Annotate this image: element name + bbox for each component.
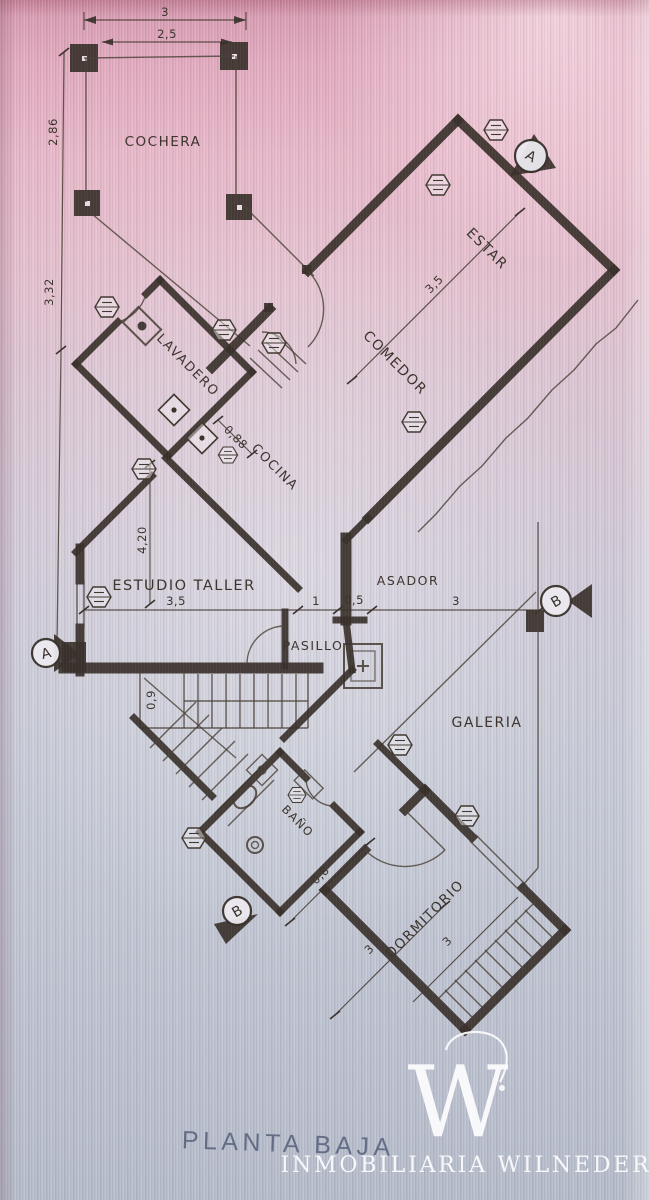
dim-cochera-width-inner: 2,5: [157, 27, 177, 41]
section-marker-b-bottom: B: [214, 897, 258, 944]
room-label-dormitorio: DORMITORIO: [383, 877, 468, 962]
closet-hatch: [445, 910, 555, 1020]
floor-plan-photo: 3 2,5 COCHERA 2,86 3,32: [0, 0, 649, 1200]
room-label-comedor: COMEDOR: [360, 328, 431, 399]
sink-icon: [247, 837, 263, 853]
brand-logo-letter: W: [408, 1046, 509, 1160]
room-label-bano: BAÑO: [279, 802, 317, 840]
dim-side-height: 3,32: [42, 278, 56, 306]
brand-watermark: W INMOBILIARIA WILNEDER: [281, 1032, 649, 1178]
carpentry-hexagon-marker: [132, 459, 156, 479]
brand-logo-flourish-dot: [499, 1085, 505, 1091]
dim-galeria: 3: [452, 594, 460, 608]
carpentry-hexagon-marker: [288, 788, 306, 803]
carpentry-hexagon-marker: [455, 806, 479, 826]
sink-drain-icon: [252, 842, 259, 849]
lavadero-door-arc: [118, 294, 146, 322]
pasillo-door-arc: [247, 626, 285, 664]
carpentry-hexagon-marker: [484, 120, 508, 140]
carpentry-hexagon-marker: [87, 587, 111, 607]
carpentry-hexagon-marker: [218, 447, 237, 463]
carpentry-hexagon-marker: [182, 828, 206, 848]
room-label-estar: ESTAR: [463, 225, 511, 273]
dim-cochera-height: 2,86: [46, 118, 60, 146]
dimension-chain: 3,5 1 0,5 3: [79, 593, 545, 614]
carpentry-hexagon-marker: [426, 175, 450, 195]
dim-estar-width: 3,5: [422, 272, 446, 296]
room-label-galeria: GALERIA: [451, 715, 522, 731]
washer-icon: [158, 394, 189, 425]
dim-pasillo: 1: [312, 594, 320, 608]
dim-dormitorio-b: 3: [439, 933, 454, 948]
carpentry-hexagon-marker: [388, 735, 412, 755]
dim-estudio-height: 4,20: [135, 526, 149, 554]
carpentry-hexagon-marker: [262, 333, 286, 353]
room-label-cochera: COCHERA: [125, 134, 202, 150]
carpentry-hexagon-marker: [212, 320, 236, 340]
dim-stairs: 0,9: [144, 690, 158, 710]
section-markers: A A B B: [32, 134, 592, 944]
dim-cochera-width: 3: [161, 5, 169, 19]
toilet-icon: [229, 781, 260, 812]
section-marker-a-top: A: [510, 134, 556, 176]
room-label-pasillo: PASILLO: [283, 638, 344, 653]
washer-icon: [186, 422, 217, 453]
brand-name: INMOBILIARIA WILNEDER: [281, 1153, 649, 1178]
break-line: [418, 300, 638, 532]
dormitorio-door-arc: [365, 850, 445, 867]
carpentry-hexagon-marker: [95, 297, 119, 317]
entrance-door-arc: [308, 271, 324, 347]
section-marker-b-right: B: [541, 584, 592, 618]
room-label-asador: ASADOR: [377, 573, 439, 588]
floor-plan-drawing: 3 2,5 COCHERA 2,86 3,32: [0, 0, 649, 1200]
dormitorio-area: DORMITORIO 3 3: [325, 790, 565, 1030]
room-label-estudio-taller: ESTUDIO TALLER: [112, 578, 255, 594]
carpentry-hexagon-marker: [402, 412, 426, 432]
dim-estudio-width: 3,5: [166, 594, 186, 608]
room-label-cocina: COCINA: [248, 441, 301, 494]
